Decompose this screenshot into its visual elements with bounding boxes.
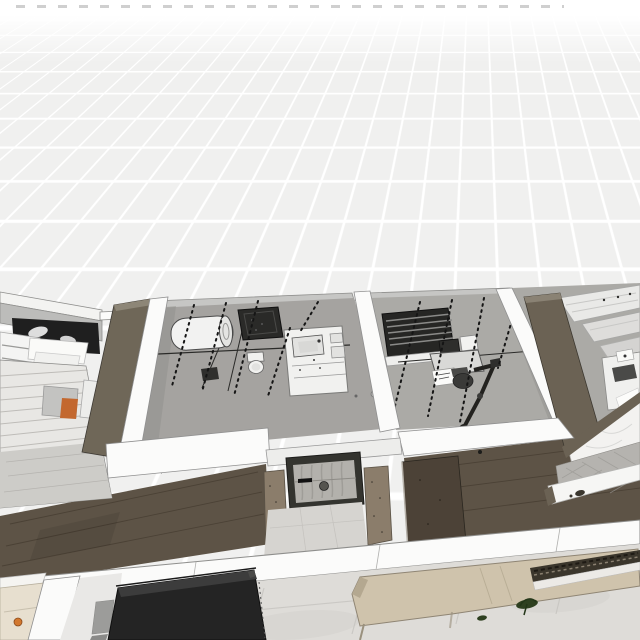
door-knob bbox=[320, 482, 329, 491]
orange-cushion bbox=[60, 398, 78, 419]
shelf bbox=[331, 346, 345, 358]
water-heater bbox=[170, 315, 234, 351]
front-door bbox=[286, 452, 364, 510]
floor-dot bbox=[355, 395, 358, 398]
shelf bbox=[330, 333, 343, 343]
vanity-sink bbox=[284, 326, 348, 396]
3d-viewport[interactable] bbox=[0, 0, 640, 640]
wood-door-panel-right bbox=[364, 466, 392, 545]
floor-mat bbox=[201, 367, 219, 381]
apartment-model bbox=[0, 0, 640, 640]
dark-wardrobe-panel bbox=[402, 456, 466, 550]
desk-chair bbox=[453, 374, 473, 389]
basin bbox=[298, 340, 318, 353]
faucet bbox=[317, 339, 320, 342]
orange-knob bbox=[14, 618, 22, 626]
shower-tray bbox=[238, 307, 283, 340]
